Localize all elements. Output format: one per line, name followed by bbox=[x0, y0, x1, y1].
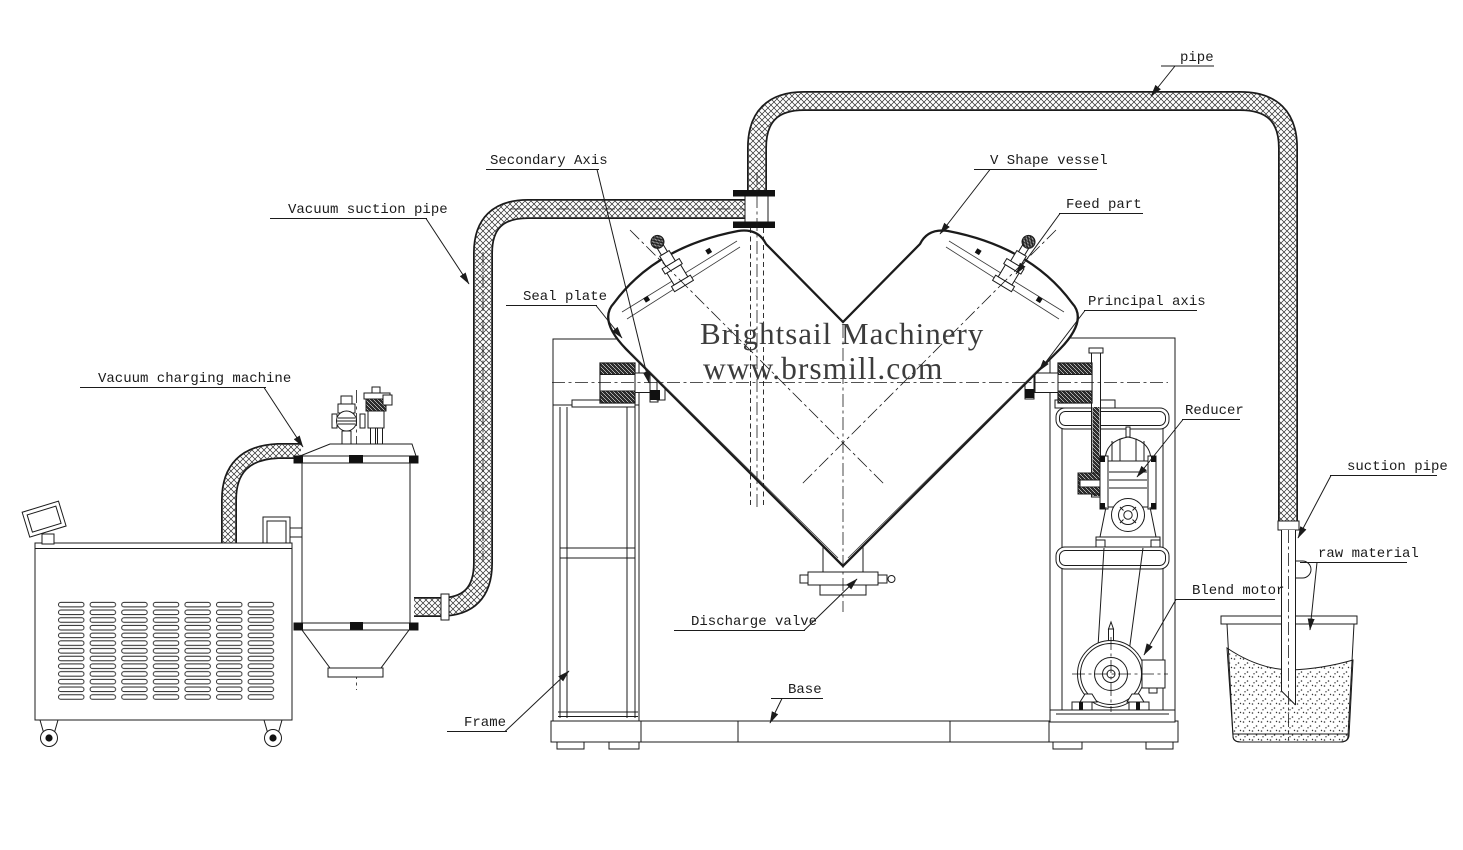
svg-text:Vacuum charging machine: Vacuum charging machine bbox=[98, 371, 291, 387]
svg-text:V Shape vessel: V Shape vessel bbox=[990, 153, 1108, 169]
svg-text:Discharge valve: Discharge valve bbox=[691, 614, 817, 630]
svg-text:suction pipe: suction pipe bbox=[1347, 459, 1448, 475]
vent-louvers bbox=[56, 600, 278, 700]
caster-wheel-right bbox=[264, 720, 282, 747]
svg-text:Frame: Frame bbox=[464, 715, 506, 731]
svg-text:Principal axis: Principal axis bbox=[1088, 294, 1206, 310]
svg-text:Seal plate: Seal plate bbox=[523, 289, 607, 305]
watermark-company: Brightsail Machinery bbox=[700, 316, 984, 351]
svg-text:Vacuum suction pipe: Vacuum suction pipe bbox=[288, 202, 448, 218]
svg-text:raw material: raw material bbox=[1318, 546, 1419, 562]
hopper-cylinder bbox=[302, 463, 410, 623]
svg-text:Feed part: Feed part bbox=[1066, 197, 1142, 213]
hose-clamp bbox=[441, 594, 449, 620]
svg-text:Secondary Axis: Secondary Axis bbox=[490, 153, 608, 169]
svg-text:Base: Base bbox=[788, 682, 822, 698]
svg-text:Reducer: Reducer bbox=[1185, 403, 1244, 419]
watermark-website: www.brsmill.com bbox=[703, 351, 943, 386]
v-type-mixer-diagram: Brightsail Machinery www.brsmill.com pip… bbox=[0, 0, 1463, 850]
pipe-clamp bbox=[1296, 561, 1312, 578]
svg-text:pipe: pipe bbox=[1180, 50, 1214, 66]
caster-wheel-left bbox=[40, 720, 58, 747]
engineering-drawing: Brightsail Machinery www.brsmill.com pip… bbox=[0, 0, 1463, 850]
svg-text:Blend motor: Blend motor bbox=[1192, 583, 1284, 599]
